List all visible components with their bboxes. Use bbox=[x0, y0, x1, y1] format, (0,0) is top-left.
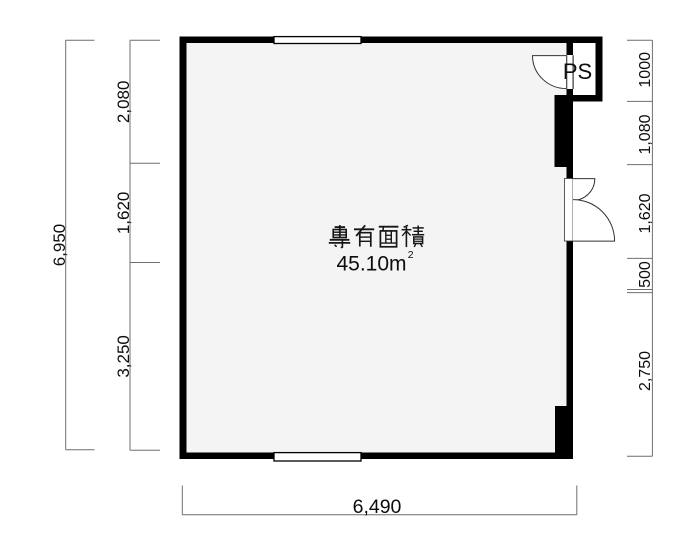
svg-text:1000: 1000 bbox=[637, 52, 654, 88]
svg-text:PS: PS bbox=[563, 59, 592, 84]
svg-text:2,080: 2,080 bbox=[114, 81, 133, 124]
svg-text:500: 500 bbox=[637, 261, 654, 288]
svg-text:6,490: 6,490 bbox=[353, 496, 402, 518]
svg-text:2: 2 bbox=[408, 249, 414, 261]
svg-text:3,250: 3,250 bbox=[114, 335, 133, 378]
svg-text:2,750: 2,750 bbox=[637, 351, 654, 391]
svg-text:1,620: 1,620 bbox=[114, 192, 133, 235]
svg-text:1,620: 1,620 bbox=[637, 193, 654, 233]
svg-text:6,950: 6,950 bbox=[50, 224, 69, 267]
svg-text:45.10m: 45.10m bbox=[336, 253, 406, 276]
svg-text:1,080: 1,080 bbox=[637, 114, 654, 154]
